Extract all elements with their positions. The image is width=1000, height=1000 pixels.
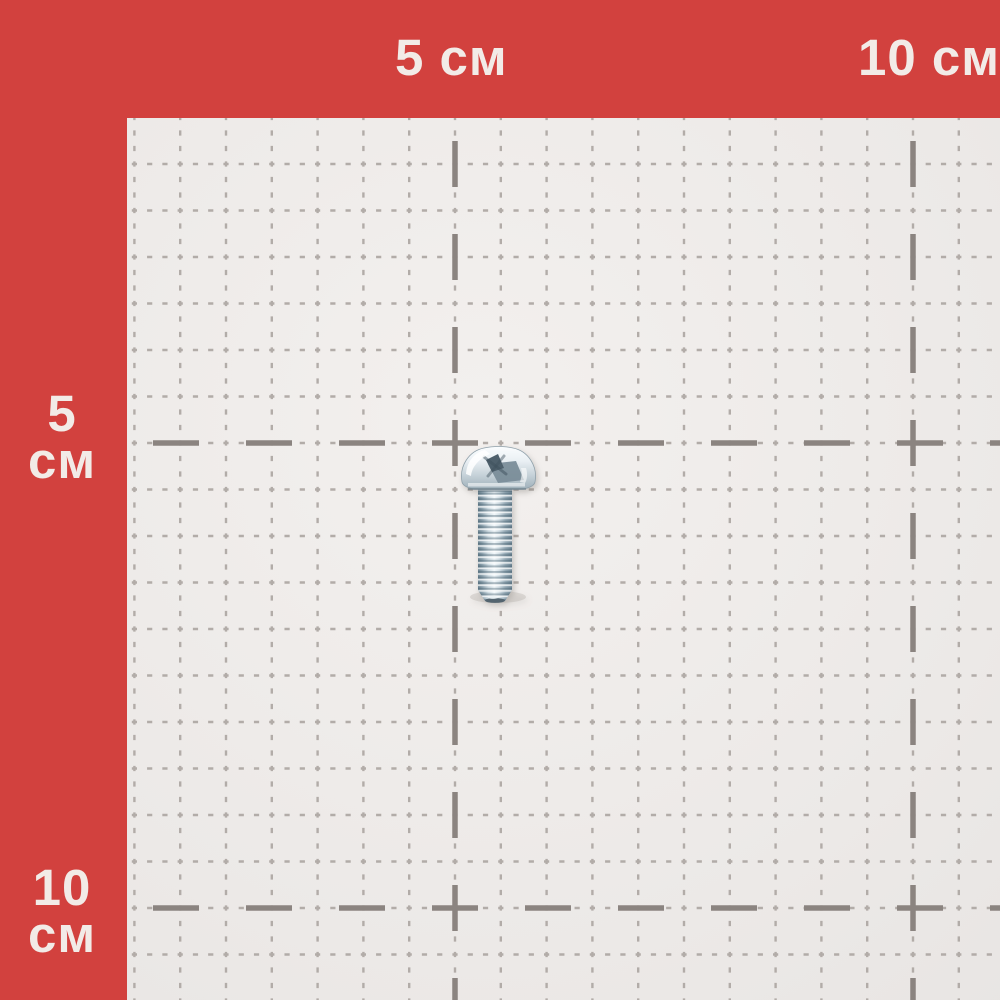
ruler-label-5cm-top: 5 см (395, 28, 508, 87)
ruler-label-5cm-left-value: 5 (0, 390, 124, 437)
ruler-label-10cm-left-unit: см (0, 911, 124, 958)
screw-image (438, 424, 558, 614)
ruler-label-10cm-left-value: 10 (0, 864, 124, 911)
product-photo: 5 см 10 см 5 см 10 см (0, 0, 1000, 1000)
ruler-label-5cm-left: 5 см (0, 390, 124, 484)
screw-shank (478, 487, 512, 603)
ruler-label-10cm-top: 10 см (858, 28, 1000, 87)
ruler-label-5cm-left-unit: см (0, 437, 124, 484)
ruler-label-10cm-left: 10 см (0, 864, 124, 958)
screw-head (461, 447, 535, 490)
ruler-left-border (0, 0, 127, 1000)
